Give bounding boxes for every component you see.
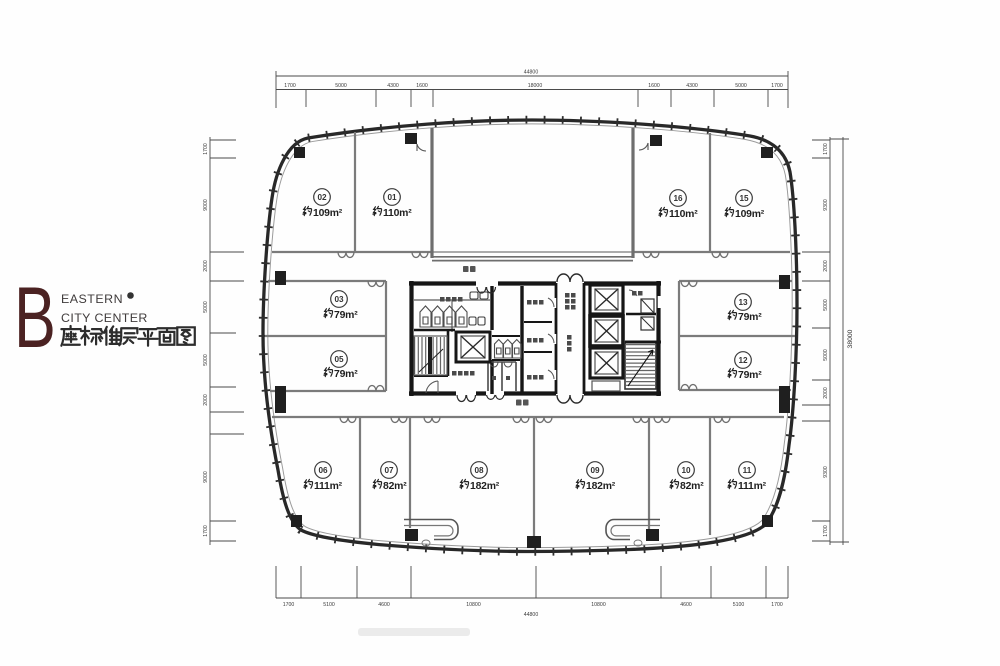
svg-text:82m²: 82m² xyxy=(383,481,407,492)
svg-text:79m²: 79m² xyxy=(738,312,762,323)
svg-text:44800: 44800 xyxy=(524,70,539,76)
svg-text:10800: 10800 xyxy=(591,602,606,608)
svg-text:79m²: 79m² xyxy=(738,370,762,381)
svg-text:13: 13 xyxy=(738,298,748,307)
svg-text:02: 02 xyxy=(317,193,327,202)
svg-text:05: 05 xyxy=(334,355,344,364)
svg-text:110m²: 110m² xyxy=(669,209,698,220)
svg-text:1600: 1600 xyxy=(648,83,660,89)
svg-text:44800: 44800 xyxy=(524,612,539,618)
svg-text:110m²: 110m² xyxy=(383,208,412,219)
svg-text:1700: 1700 xyxy=(284,83,296,89)
svg-text:EASTERN: EASTERN xyxy=(61,292,123,306)
svg-text:2000: 2000 xyxy=(203,260,209,272)
svg-text:08: 08 xyxy=(474,466,484,475)
svg-text:1700: 1700 xyxy=(771,602,783,608)
svg-text:5000: 5000 xyxy=(203,301,209,313)
svg-text:5000: 5000 xyxy=(203,354,209,366)
svg-text:03: 03 xyxy=(334,295,344,304)
svg-text:16: 16 xyxy=(673,194,683,203)
svg-text:07: 07 xyxy=(384,466,394,475)
svg-text:79m²: 79m² xyxy=(334,310,358,321)
svg-text:1700: 1700 xyxy=(823,143,829,155)
svg-text:06: 06 xyxy=(318,466,328,475)
svg-text:79m²: 79m² xyxy=(334,369,358,380)
svg-text:10: 10 xyxy=(681,466,691,475)
svg-text:5000: 5000 xyxy=(823,299,829,311)
svg-text:4600: 4600 xyxy=(378,602,390,608)
svg-text:11: 11 xyxy=(743,466,752,475)
svg-text:09: 09 xyxy=(590,466,600,475)
svg-text:15: 15 xyxy=(739,194,749,203)
svg-text:1700: 1700 xyxy=(823,525,829,537)
svg-text:2000: 2000 xyxy=(823,260,829,272)
svg-text:182m²: 182m² xyxy=(470,481,500,492)
svg-text:5000: 5000 xyxy=(823,349,829,361)
svg-text:10800: 10800 xyxy=(466,602,481,608)
svg-text:2000: 2000 xyxy=(823,387,829,399)
svg-text:5000: 5000 xyxy=(335,83,347,89)
svg-text:B: B xyxy=(14,269,56,365)
svg-text:1700: 1700 xyxy=(203,143,209,155)
svg-text:111m²: 111m² xyxy=(314,481,343,492)
svg-text:5100: 5100 xyxy=(733,602,745,608)
svg-text:111m²: 111m² xyxy=(738,481,767,492)
svg-text:4300: 4300 xyxy=(686,83,698,89)
svg-text:9000: 9000 xyxy=(203,471,209,483)
svg-text:1600: 1600 xyxy=(416,83,428,89)
svg-text:5100: 5100 xyxy=(323,602,335,608)
svg-text:4300: 4300 xyxy=(387,83,399,89)
svg-text:CITY CENTER: CITY CENTER xyxy=(61,311,148,325)
svg-text:1700: 1700 xyxy=(771,83,783,89)
svg-text:109m²: 109m² xyxy=(735,209,765,220)
svg-text:182m²: 182m² xyxy=(586,481,616,492)
svg-text:9300: 9300 xyxy=(823,199,829,211)
svg-text:5000: 5000 xyxy=(735,83,747,89)
svg-text:38000: 38000 xyxy=(847,329,854,348)
svg-text:01: 01 xyxy=(387,193,397,202)
svg-text:1700: 1700 xyxy=(203,525,209,537)
svg-text:2000: 2000 xyxy=(203,394,209,406)
svg-text:109m²: 109m² xyxy=(313,208,343,219)
svg-text:82m²: 82m² xyxy=(680,481,704,492)
svg-text:9000: 9000 xyxy=(203,199,209,211)
svg-text:4600: 4600 xyxy=(680,602,692,608)
svg-text:9300: 9300 xyxy=(823,466,829,478)
svg-text:12: 12 xyxy=(738,356,748,365)
svg-text:18000: 18000 xyxy=(528,83,543,89)
svg-text:1700: 1700 xyxy=(283,602,295,608)
